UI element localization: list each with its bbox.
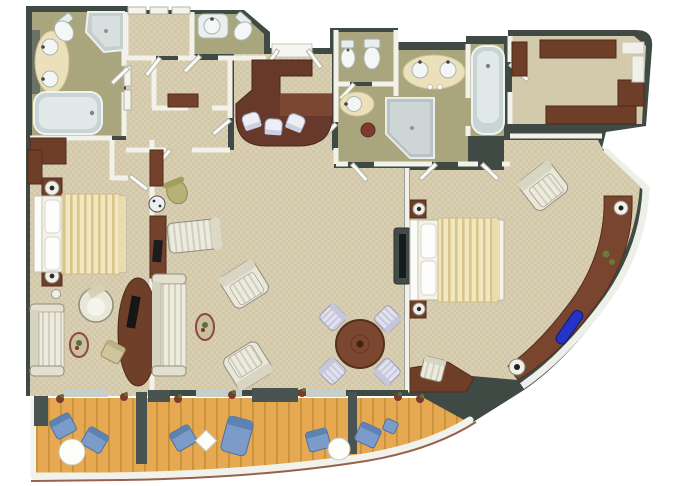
living-sofa-back (152, 282, 161, 368)
masterbath-knob-left (428, 85, 433, 90)
floor-plan (0, 0, 680, 486)
balcony-sill-a (148, 390, 170, 402)
master-desk-plant-1 (603, 251, 610, 258)
louver-closet-door-2 (150, 7, 168, 14)
threshold-plant-1 (60, 394, 64, 398)
closet-shelf-b (632, 56, 644, 82)
threshold-plant-4 (232, 390, 236, 394)
master-lamp-bottom-dot (417, 307, 421, 311)
wc-vanity-sink (347, 97, 362, 112)
living-globe-table (149, 196, 165, 212)
living-wall-cabinet (150, 150, 163, 186)
bath-shower-drain (104, 29, 108, 33)
guest-sofa-seat (39, 312, 64, 368)
masterbath-sink-right (440, 62, 456, 78)
balcony-corner-block (34, 396, 48, 426)
bath-sink-top-faucet (41, 45, 45, 49)
guest-bed-pillow-1 (45, 200, 60, 233)
louver-closet-door-1 (128, 7, 146, 14)
master-tv-screen (399, 234, 406, 278)
master-bed-pillow-2 (421, 261, 436, 295)
closet-wardrobe-bottom (546, 106, 636, 124)
balcony-glass-door-3 (306, 390, 346, 397)
bath-tub-drain (90, 111, 94, 115)
wc-toilet-bowl (364, 47, 380, 69)
living-sofa-arm-bottom (152, 366, 186, 376)
guest-lamp-bottom-dot (50, 274, 55, 279)
master-desk-plant-2 (609, 259, 615, 265)
threshold-plant-2 (124, 392, 128, 396)
guest-wardrobe-b (28, 150, 42, 184)
living-globe-dot-1 (153, 200, 156, 203)
deck-table-round-1 (59, 439, 85, 465)
guest-sofa-back (30, 310, 39, 370)
wc-vanity-faucet (344, 102, 348, 106)
deck-table-round-2 (328, 438, 350, 460)
master-desk-lamp-top-dot (619, 206, 624, 211)
closet-shelf-a (622, 42, 644, 54)
masterbath-shower-drain (410, 126, 414, 130)
guest-armchair-seat (87, 298, 105, 316)
guest-bed-pillow-2 (45, 237, 60, 270)
closet-room-floor (126, 14, 190, 56)
guest-lamp-small (52, 290, 61, 299)
bath-sink-bottom-faucet (41, 77, 45, 81)
masterbath-knob-right (438, 85, 443, 90)
master-floor-lamp-dot (514, 364, 520, 370)
balcony-sill-b (252, 388, 298, 402)
guest-bed-duvet (62, 194, 120, 274)
corridor-cabinet (168, 94, 198, 107)
guest-bed-foot-fold (118, 196, 126, 272)
threshold-plant-5 (302, 388, 306, 392)
balcony-partition-1 (136, 392, 147, 464)
masterbath-faucet-right (446, 60, 450, 64)
guest-side-table-pot (75, 346, 79, 350)
living-oval-table-plant (202, 322, 208, 328)
master-bed-duvet (438, 218, 498, 302)
masterbath-stool (361, 123, 375, 137)
guest-lamp-top-dot (50, 186, 55, 191)
master-bed-headboard (410, 220, 418, 300)
louver-hall-door-2 (124, 90, 131, 110)
powder-sink-faucet (210, 17, 214, 21)
living-oval-table-pot (201, 328, 205, 332)
bar-counter-top (280, 94, 332, 116)
guest-bed-headboard (34, 196, 42, 272)
masterbath-faucet-left (418, 60, 422, 64)
closet-wardrobe-top (540, 40, 616, 58)
threshold-plant-3 (178, 394, 182, 398)
master-lamp-top-dot (417, 207, 421, 211)
wc-bidet-tank (341, 40, 354, 48)
threshold-plant-6 (398, 392, 402, 396)
floor-plan-svg (0, 0, 680, 486)
closet-wardrobe-left (512, 42, 527, 76)
master-bed-foot-fold (492, 220, 500, 300)
masterbath-tub-basin (477, 51, 499, 123)
masterbath-sink-left (412, 62, 428, 78)
guest-sofa-arm-bottom (30, 366, 64, 376)
guest-side-table-plant (76, 340, 82, 346)
bath-tub-basin (39, 97, 97, 129)
threshold-plant-7 (420, 394, 424, 398)
master-bed-pillow-1 (421, 224, 436, 258)
masterbath-tub-drain (486, 64, 490, 68)
wc-bidet-faucet (347, 49, 350, 52)
louver-closet-door-3 (172, 7, 190, 14)
living-sofa-seat (161, 284, 186, 368)
living-globe-dot-2 (159, 205, 162, 208)
balcony-glass-door-1 (64, 390, 108, 397)
dining-table-hub (357, 341, 364, 348)
living-desk-laptop (152, 240, 163, 263)
closet-wardrobe-right (618, 80, 644, 106)
